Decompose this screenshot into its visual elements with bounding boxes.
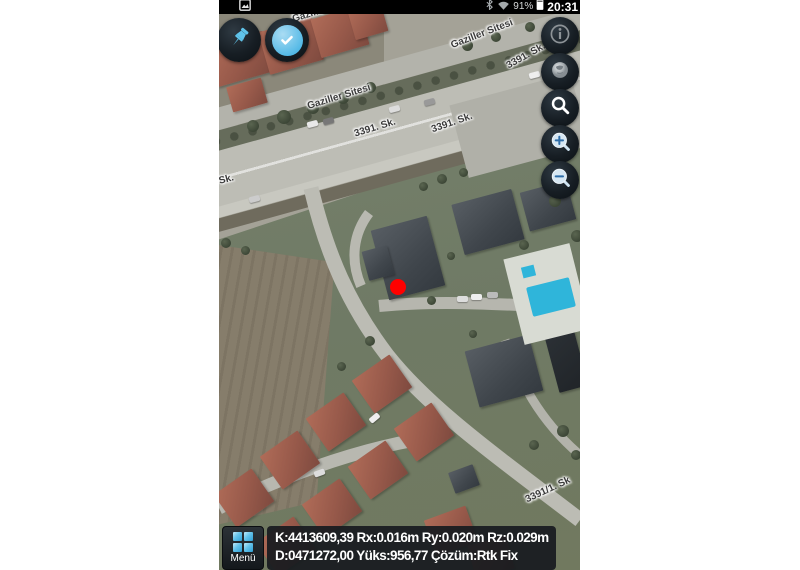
map-tree	[519, 240, 529, 250]
map-view[interactable]: Gaziller SitesiGaziller Sitesi3391. Sk.3…	[219, 0, 580, 570]
grid-icon	[233, 532, 253, 552]
search-icon	[549, 94, 572, 122]
map-tree	[525, 22, 535, 32]
battery-percent: 91%	[513, 0, 533, 14]
bluetooth-icon	[485, 0, 494, 16]
map-tree	[427, 296, 436, 305]
check-icon	[272, 25, 303, 56]
zoom-out-icon	[549, 166, 572, 194]
zoom-out-button[interactable]	[541, 161, 579, 199]
readout-line1: K:4413609,39 Rx:0.016m Ry:0.020m Rz:0.02…	[275, 529, 548, 547]
battery-icon	[536, 0, 544, 16]
map-tree	[571, 230, 580, 242]
map-tree	[419, 182, 428, 191]
map-tree	[571, 450, 580, 460]
coordinate-readout: K:4413609,39 Rx:0.016m Ry:0.020m Rz:0.02…	[267, 526, 556, 570]
map-tree	[337, 362, 346, 371]
info-button[interactable]	[541, 17, 579, 55]
menu-button-label: Menü	[230, 553, 255, 564]
map-tree	[241, 246, 250, 255]
pushpin-icon	[226, 25, 252, 56]
gps-position-marker	[390, 279, 406, 295]
map-tree	[557, 425, 569, 437]
map-tree	[469, 330, 477, 338]
clock: 20:31	[547, 0, 578, 14]
map-tree	[365, 336, 375, 346]
map-controls	[541, 17, 579, 197]
zoom-in-icon	[549, 130, 572, 158]
map-tree	[459, 168, 468, 177]
bottom-bar: Menü K:4413609,39 Rx:0.016m Ry:0.020m Rz…	[222, 526, 556, 570]
pin-point-button[interactable]	[219, 18, 261, 62]
readout-line2: D:0471272,00 Yüks:956,77 Çözüm:Rtk Fix	[275, 547, 548, 565]
screenshot-icon	[239, 0, 251, 16]
map-tree	[529, 440, 539, 450]
map-tree	[447, 252, 455, 260]
search-button[interactable]	[541, 89, 579, 127]
menu-button[interactable]: Menü	[222, 526, 264, 570]
wifi-icon	[497, 0, 510, 16]
status-bar: 91% 20:31	[219, 0, 580, 14]
layers-globe-button[interactable]	[541, 53, 579, 91]
confirm-button[interactable]	[265, 18, 309, 62]
globe-icon	[549, 59, 571, 86]
info-icon	[548, 22, 572, 51]
map-tree	[247, 120, 259, 132]
map-tree	[221, 238, 231, 248]
map-car	[487, 292, 498, 298]
map-car	[457, 296, 468, 302]
map-car	[471, 294, 482, 300]
map-tree	[277, 110, 291, 124]
app-window: Gaziller SitesiGaziller Sitesi3391. Sk.3…	[219, 0, 580, 570]
zoom-in-button[interactable]	[541, 125, 579, 163]
map-tree	[437, 174, 447, 184]
